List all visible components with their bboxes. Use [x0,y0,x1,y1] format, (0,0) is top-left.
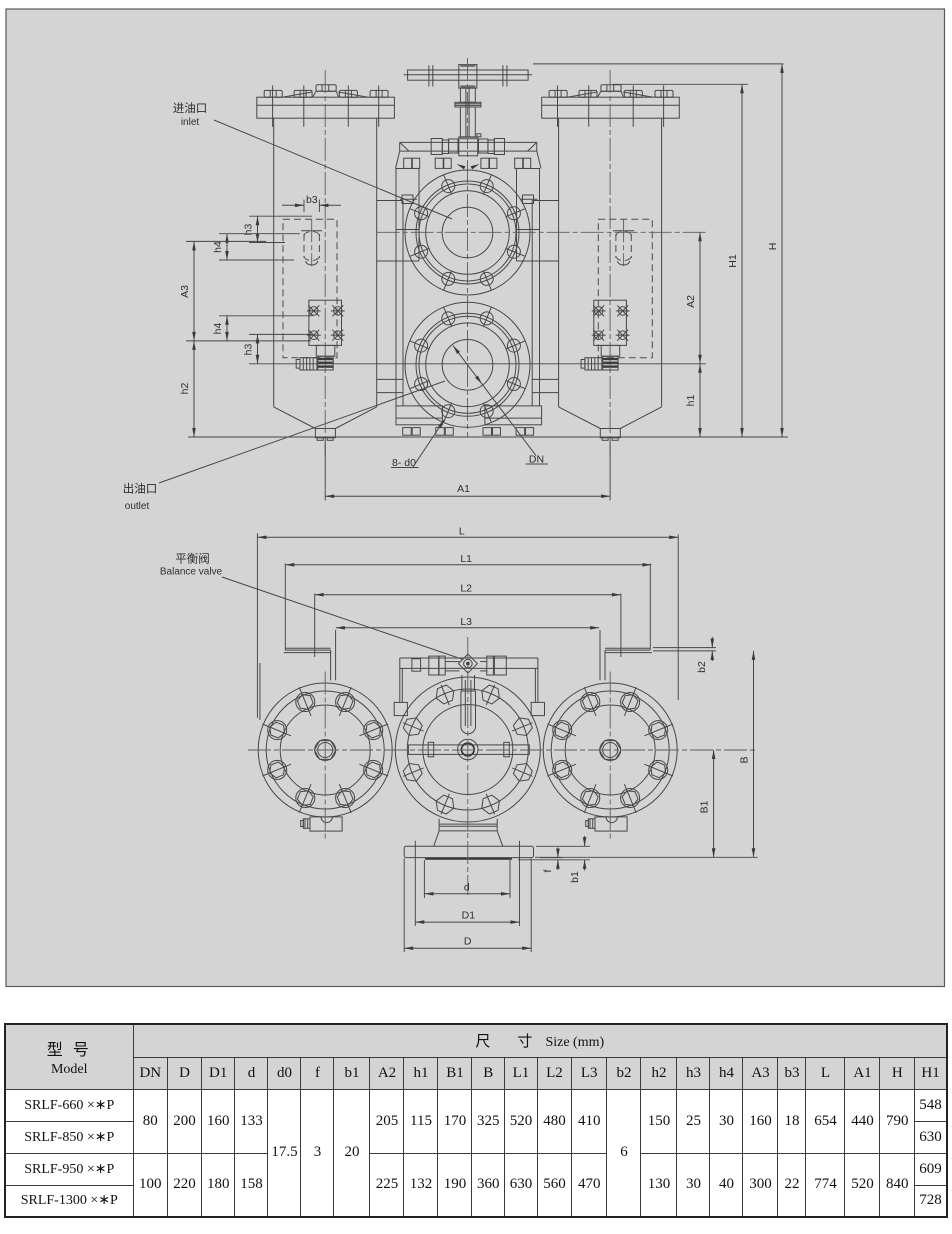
svg-text:H: H [767,243,779,251]
svg-text:B1: B1 [699,800,711,813]
svg-text:f: f [542,869,554,872]
svg-text:h3: h3 [243,344,255,356]
svg-text:outlet: outlet [125,501,150,512]
svg-text:A3: A3 [179,285,191,298]
svg-text:L: L [459,525,465,537]
svg-text:h4: h4 [212,323,224,335]
svg-text:b2: b2 [696,661,708,673]
svg-text:进油口: 进油口 [173,101,208,115]
svg-text:L3: L3 [460,616,472,628]
svg-text:D: D [464,936,472,948]
svg-text:D1: D1 [462,910,476,922]
svg-text:b3: b3 [306,194,318,206]
svg-text:L1: L1 [460,553,472,565]
svg-text:出油口: 出油口 [123,482,158,496]
svg-text:A2: A2 [685,295,697,308]
svg-text:A1: A1 [457,483,470,495]
svg-text:平衡阀: 平衡阀 [175,552,210,566]
svg-text:Balance valve: Balance valve [160,567,223,578]
svg-text:b1: b1 [569,871,581,883]
svg-text:H1: H1 [727,254,739,268]
svg-text:d: d [464,882,470,894]
svg-text:B: B [739,756,751,763]
svg-text:h2: h2 [179,383,191,395]
svg-text:h4: h4 [212,241,224,253]
svg-text:inlet: inlet [181,117,200,128]
svg-text:L2: L2 [460,583,472,595]
svg-text:h1: h1 [685,395,697,407]
